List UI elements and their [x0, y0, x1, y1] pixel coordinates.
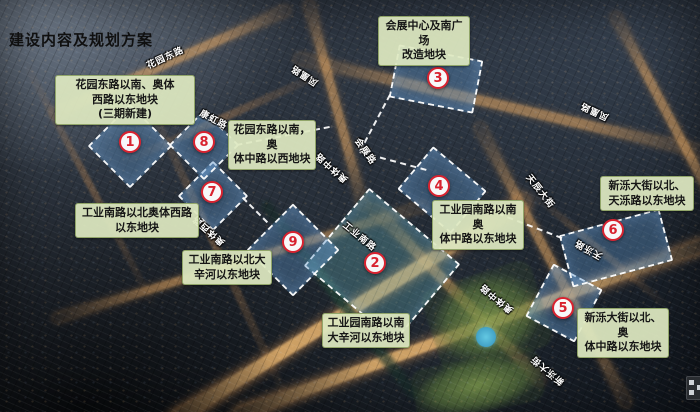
zone-label: 花园东路以南，奥 体中路以西地块 [228, 120, 316, 170]
zone-number-badge: 2 [364, 252, 386, 274]
zone-label: 工业南路以北奥体西路 以东地块 [75, 203, 199, 238]
zone-label: 新泺大街以北、奥 体中路以东地块 [577, 308, 669, 358]
pond [476, 327, 496, 347]
corner-watermark [686, 376, 700, 400]
zone-label: 工业南路以北大 辛河以东地块 [182, 250, 272, 285]
zone-number-badge: 3 [427, 67, 449, 89]
zone-number-badge: 4 [428, 175, 450, 197]
zone-number-badge: 8 [193, 131, 215, 153]
zone-label: 工业园南路以南 大辛河以东地块 [322, 313, 410, 348]
page-title: 建设内容及规划方案 [9, 29, 153, 50]
zone-number-badge: 9 [282, 231, 304, 253]
zone-number-badge: 6 [602, 219, 624, 241]
zone-label: 会展中心及南广场 改造地块 [378, 16, 470, 66]
zone-label: 新泺大街以北、 天泺路以东地块 [600, 176, 694, 211]
zone-number-badge: 5 [552, 297, 574, 319]
zone-label: 工业园南路以南奥 体中路以东地块 [432, 200, 524, 250]
zone-label: 花园东路以南、奥体 西路以东地块 (三期新建) [55, 75, 195, 125]
zone-number-badge: 1 [119, 131, 141, 153]
zone-number-badge: 7 [201, 181, 223, 203]
planning-map-image: 建设内容及规划方案 1花园东路以南、奥体 西路以东地块 (三期新建)2工业园南路… [0, 0, 700, 412]
